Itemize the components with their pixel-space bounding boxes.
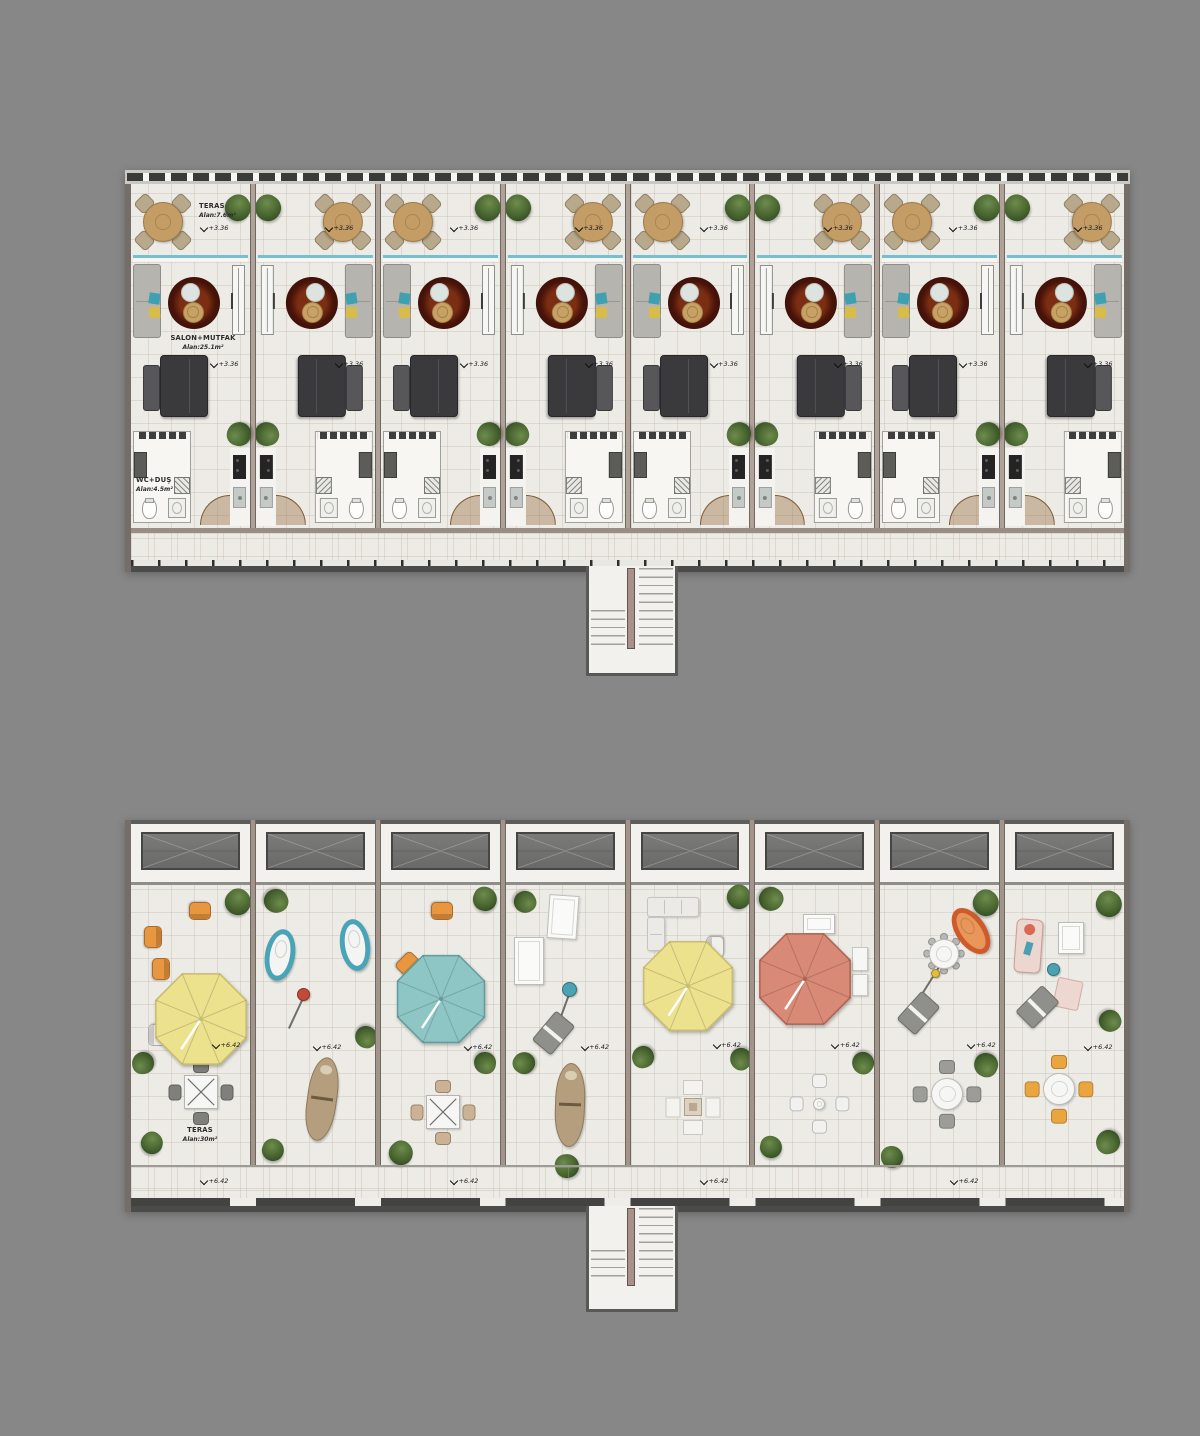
level-tick-icon <box>450 224 458 232</box>
shower-screen <box>1067 432 1119 439</box>
roof-partition-wall <box>500 820 506 1165</box>
shower-tray <box>566 477 582 494</box>
washbasin <box>917 498 935 518</box>
wardrobe-line <box>238 268 239 332</box>
level-marker: +3.36 <box>1085 360 1112 368</box>
pouf-wicker <box>682 302 703 323</box>
pouf-light <box>181 283 200 302</box>
area-label: WC+DUŞ <box>136 476 171 484</box>
level-tick-icon <box>834 360 842 368</box>
roof-terrace-unit: +6.42 <box>256 885 375 1165</box>
sink-faucet <box>514 496 518 500</box>
pouf-light <box>680 283 699 302</box>
roof-terrace-plan: +6.42TERASAlan:30m²+6.42+6.42+6.42+6.42+… <box>125 820 1130 1212</box>
patio-umbrella <box>149 967 253 1071</box>
kitchen-sink <box>260 487 273 508</box>
kitchen-counter <box>480 448 500 526</box>
sofa-pillow-yellow <box>398 306 410 318</box>
plant-shrub <box>1094 1128 1122 1156</box>
roof-terrace-unit: +6.42 <box>506 885 625 1165</box>
bathroom <box>315 431 373 523</box>
mattress-line <box>518 941 540 981</box>
wardrobe-line <box>738 268 739 332</box>
sofa-pillow-teal <box>345 292 357 304</box>
lounge-pad <box>683 1080 703 1095</box>
wardrobe-handle <box>523 293 525 309</box>
area-label: TERAS <box>165 1126 235 1134</box>
area-label: Alan:30m² <box>165 1136 235 1143</box>
apartment-unit: +3.36+3.36 <box>755 184 874 528</box>
wardrobe-line <box>766 268 767 332</box>
pouf-light <box>556 283 575 302</box>
shower-screen <box>636 432 688 439</box>
kitchen-sink <box>1009 487 1022 508</box>
pouf-wicker <box>432 302 453 323</box>
sofa-pillow-yellow <box>898 306 910 318</box>
pergola-skylight <box>890 832 989 870</box>
shower-screen <box>318 432 370 439</box>
lounge-pad <box>683 1120 703 1135</box>
level-marker: +3.36 <box>711 360 738 368</box>
cooktop <box>732 455 745 479</box>
plant-shrub <box>971 1049 1002 1080</box>
unit-partition-wall <box>375 184 381 528</box>
kitchen-sink <box>233 487 246 508</box>
bathroom <box>633 431 691 523</box>
wardrobe <box>232 265 245 335</box>
wardrobe-line <box>1016 268 1017 332</box>
apartment-unit: +3.36+3.36 <box>1005 184 1124 528</box>
wardrobe <box>511 265 524 335</box>
area-label: Alan:25.1m² <box>161 344 245 351</box>
terrace-threshold <box>633 258 748 262</box>
plant-shrub <box>136 1127 167 1158</box>
wardrobe-handle <box>273 293 275 309</box>
level-marker: +6.42 <box>968 1041 995 1049</box>
kitchen-sink <box>759 487 772 508</box>
lounger-strap <box>543 1024 563 1042</box>
level-marker: +6.42 <box>714 1041 741 1049</box>
washbasin <box>418 498 436 518</box>
pergola-skylight <box>765 832 864 870</box>
roof-terrace-unit: +6.42 <box>1005 885 1124 1165</box>
sofa-pillow-yellow <box>1094 306 1106 318</box>
round-table <box>813 1098 825 1110</box>
toilet-tank <box>894 498 903 503</box>
lounger-strap <box>908 1004 928 1022</box>
bed-fold <box>189 359 190 413</box>
bed-side-cushion <box>892 365 909 411</box>
unit-furniture-layer <box>506 184 625 528</box>
dining-table <box>184 1075 218 1109</box>
lounge-table-inner <box>689 1103 697 1111</box>
shower-screen <box>386 432 438 439</box>
floor-mat <box>1052 977 1084 1012</box>
washbasin-bowl <box>324 502 334 514</box>
level-tick-icon <box>200 224 208 232</box>
lounge-chair <box>1013 918 1044 974</box>
lounge-table <box>684 1098 702 1116</box>
pouf-light <box>930 283 949 302</box>
toilet <box>349 498 364 519</box>
stair-landing <box>589 566 628 605</box>
plant-shrub <box>1095 1006 1125 1036</box>
dining-chair <box>435 1080 451 1093</box>
round-table <box>931 1078 963 1110</box>
mattress-line <box>1062 926 1080 950</box>
roof-partition-wall <box>999 820 1005 1165</box>
shower-cabinet <box>634 452 647 478</box>
pouf-ring <box>807 306 818 317</box>
level-tick-icon <box>335 360 343 368</box>
dining-chair <box>221 1084 234 1100</box>
kitchen-counter <box>1005 448 1025 526</box>
level-marker: +3.36 <box>451 224 478 232</box>
stair-divider-wall <box>627 1208 635 1286</box>
toilet-tank <box>851 498 860 503</box>
lounger-strap <box>1027 998 1046 1017</box>
washbasin <box>819 498 837 518</box>
dining-chair <box>169 1084 182 1100</box>
shower-tray <box>1065 477 1081 494</box>
architectural-plan-canvas: +3.36+3.36TERASAlan:7.6m²SALON+MUTFAKAla… <box>0 0 1200 1436</box>
sink-faucet <box>264 496 268 500</box>
lounge-pillow <box>1023 924 1035 936</box>
bed-side-cushion <box>845 365 862 411</box>
washbasin-bowl <box>1073 502 1083 514</box>
shower-cabinet <box>883 452 896 478</box>
washbasin <box>1069 498 1087 518</box>
terrace-threshold <box>258 258 373 262</box>
shower-screen <box>885 432 937 439</box>
cushion-line <box>664 900 665 914</box>
area-label: SALON+MUTFAK <box>161 334 245 342</box>
sun-lounger <box>896 991 940 1036</box>
kitchen-sink <box>510 487 523 508</box>
pergola-skylight <box>1015 832 1114 870</box>
stairwell-upper-floor <box>586 566 678 676</box>
wardrobe-line <box>516 268 517 332</box>
unit-partition-wall <box>625 184 631 528</box>
sink-faucet <box>488 496 492 500</box>
pergola-skylight <box>641 832 740 870</box>
lounge-mattress <box>546 894 579 940</box>
lounge-pad <box>705 1097 720 1117</box>
area-label: Alan:7.6m² <box>199 212 236 219</box>
table-chair <box>1051 1055 1067 1070</box>
bed <box>160 355 208 417</box>
table-chair <box>913 1086 928 1102</box>
glass-sliding-door <box>1007 255 1122 258</box>
wardrobe <box>1010 265 1023 335</box>
door-swing-arc <box>700 495 730 525</box>
plan-outer-wall-left <box>125 170 131 572</box>
sofa-pillow-teal <box>595 292 607 304</box>
pouf-ring <box>187 306 198 317</box>
pouf-light <box>430 283 449 302</box>
pouf-ring <box>937 306 948 317</box>
area-label: Alan:4.5m² <box>136 486 173 493</box>
table-center <box>405 214 420 229</box>
pergola-skylight <box>516 832 615 870</box>
pouf-ring <box>437 306 448 317</box>
apartment-unit: +3.36+3.36 <box>506 184 625 528</box>
door-swing-arc <box>526 495 556 525</box>
cooktop <box>483 455 496 479</box>
bed-fold <box>566 359 567 413</box>
pergola-skylight <box>141 832 240 870</box>
sofa-pillow-yellow <box>845 306 857 318</box>
terrace-table <box>1072 202 1112 242</box>
unit-furniture-layer <box>1005 184 1124 528</box>
pouf-wicker <box>552 302 573 323</box>
roof-partition-wall <box>625 820 631 1165</box>
table-chair <box>1025 1081 1040 1097</box>
cooktop-burner <box>236 469 239 472</box>
glass-sliding-door <box>633 255 748 258</box>
level-marker: +3.36 <box>576 224 603 232</box>
pouf-light <box>306 283 325 302</box>
egg-chair-seat <box>273 939 288 959</box>
level-marker: +6.42 <box>1085 1043 1112 1051</box>
stair-landing <box>589 1206 628 1243</box>
table-chair <box>812 1120 827 1134</box>
wardrobe <box>261 265 274 335</box>
washbasin-bowl <box>921 502 931 514</box>
bed-fold <box>425 359 426 413</box>
wardrobe-line <box>988 268 989 332</box>
sofa-line <box>1105 301 1119 302</box>
toilet-tank <box>602 498 611 503</box>
round-table <box>1043 1073 1075 1105</box>
sink-faucet <box>1013 496 1017 500</box>
roof-corridor-railing <box>131 1198 1124 1206</box>
cushion-line <box>681 900 682 914</box>
corridor-wall <box>125 528 1130 533</box>
level-tick-icon <box>949 224 957 232</box>
washbasin-bowl <box>172 502 182 514</box>
level-tick-icon <box>460 360 468 368</box>
sofa <box>383 264 411 338</box>
apartment-unit: +3.36+3.36TERASAlan:7.6m²SALON+MUTFAKAla… <box>131 184 250 528</box>
unit-partition-wall <box>250 184 256 528</box>
kitchen-sink <box>982 487 995 508</box>
patio-umbrella <box>637 935 739 1037</box>
terrace-railing <box>125 170 1130 184</box>
plant-shrub <box>252 419 282 449</box>
level-tick-icon <box>574 224 582 232</box>
level-marker: +3.36 <box>461 360 488 368</box>
unit-partition-wall <box>749 184 755 528</box>
toilet-tank <box>395 498 404 503</box>
door-swing-arc <box>775 495 805 525</box>
glass-sliding-door <box>383 255 498 258</box>
level-marker: +3.36 <box>201 224 228 232</box>
toilet <box>392 498 407 519</box>
unit-furniture-layer <box>381 184 500 528</box>
wardrobe-handle <box>1022 293 1024 309</box>
lounge-pad <box>665 1097 680 1117</box>
roof-partition-wall <box>375 820 381 1165</box>
bed <box>660 355 708 417</box>
level-tick-icon <box>824 224 832 232</box>
table-chair <box>939 1060 955 1075</box>
washbasin <box>320 498 338 518</box>
level-marker: +3.36 <box>701 224 728 232</box>
apartment-unit: +3.36+3.36 <box>381 184 500 528</box>
level-tick-icon <box>450 1177 458 1185</box>
plant-shrub <box>469 883 500 914</box>
sofa <box>882 264 910 338</box>
level-tick-icon <box>950 1177 958 1185</box>
side-stool <box>297 988 310 1001</box>
level-marker: +6.42 <box>201 1177 228 1185</box>
sofa <box>345 264 373 338</box>
door-swing-arc <box>949 495 979 525</box>
plant-shrub <box>1001 419 1031 449</box>
level-marker: +6.42 <box>465 1043 492 1051</box>
roof-terrace-unit: +6.42TERASAlan:30m² <box>131 885 250 1165</box>
corridor-floor <box>131 533 1124 560</box>
bathroom <box>1064 431 1122 523</box>
plant-shrub <box>258 1135 287 1164</box>
bed-fold <box>674 359 675 413</box>
level-tick-icon <box>709 360 717 368</box>
bed <box>909 355 957 417</box>
plant-shrub <box>755 882 789 916</box>
shower-cabinet <box>134 452 147 478</box>
roof-terrace-unit: +6.42 <box>631 885 750 1165</box>
lounge-mattress <box>514 937 544 985</box>
armchair-back <box>190 914 210 919</box>
shower-cabinet <box>1108 452 1121 478</box>
dining-chair <box>435 1132 451 1145</box>
armchair <box>431 902 453 920</box>
wardrobe-line <box>488 268 489 332</box>
dining-chair <box>410 1104 423 1120</box>
sink-faucet <box>763 496 767 500</box>
kitchen-counter <box>256 448 276 526</box>
bathroom <box>814 431 872 523</box>
apartment-unit: +3.36+3.36 <box>631 184 750 528</box>
cooktop-burner <box>486 459 489 462</box>
table-chair <box>939 1114 955 1129</box>
level-tick-icon <box>464 1043 472 1051</box>
glass-sliding-door <box>133 255 248 258</box>
toilet <box>142 498 157 519</box>
dining-chair <box>193 1112 209 1125</box>
roof-parapet-line <box>125 1165 1130 1167</box>
shower-cabinet <box>359 452 372 478</box>
pouf-wicker <box>932 302 953 323</box>
bathroom <box>882 431 940 523</box>
sofa-pillow-yellow <box>648 306 660 318</box>
bed-fold <box>580 359 581 413</box>
toilet <box>642 498 657 519</box>
level-marker: +6.42 <box>582 1043 609 1051</box>
mattress-line <box>550 898 574 935</box>
bed <box>410 355 458 417</box>
bathroom <box>565 431 623 523</box>
shower-screen <box>136 432 188 439</box>
plant-shrub <box>502 419 532 449</box>
plant-shrub <box>758 1134 785 1161</box>
stairwell-roof <box>586 1206 678 1312</box>
armchair-back <box>156 927 161 947</box>
egg-chair <box>336 917 373 973</box>
level-marker: +3.36 <box>960 360 987 368</box>
shower-screen <box>568 432 620 439</box>
sink-faucet <box>238 496 242 500</box>
sofa-seat-h <box>647 897 699 917</box>
table-chair <box>1051 1109 1067 1124</box>
sofa-pillow-teal <box>398 292 410 304</box>
pouf-wicker <box>302 302 323 323</box>
patio-umbrella <box>391 949 491 1049</box>
terrace-table <box>643 202 683 242</box>
cooktop-burner <box>517 459 520 462</box>
level-marker: +3.36 <box>835 360 862 368</box>
armchair <box>189 902 211 920</box>
unit-furniture-layer <box>631 184 750 528</box>
pouf-ring <box>1056 306 1067 317</box>
level-marker: +3.36 <box>586 360 613 368</box>
side-stool <box>562 982 577 997</box>
roof-partition-wall <box>250 820 256 1165</box>
kitchen-counter <box>506 448 526 526</box>
bed-side-cushion <box>1095 365 1112 411</box>
plant-shrub <box>473 1051 497 1075</box>
table-center <box>655 214 670 229</box>
washbasin-bowl <box>422 502 432 514</box>
glass-sliding-door <box>258 255 373 258</box>
egg-chair-seat <box>347 929 361 948</box>
bed-side-cushion <box>393 365 410 411</box>
bed-fold <box>438 359 439 413</box>
kitchen-counter <box>729 448 749 526</box>
shower-cabinet <box>609 452 622 478</box>
shower-tray <box>174 477 190 494</box>
glass-sliding-door <box>882 255 997 258</box>
kitchen-counter <box>755 448 775 526</box>
door-swing-arc <box>276 495 306 525</box>
bed-fold <box>816 359 817 413</box>
level-marker: +6.42 <box>314 1043 341 1051</box>
sun-lounger <box>553 1063 586 1148</box>
toilet-tank <box>145 498 154 503</box>
table-center <box>905 214 920 229</box>
terrace-table <box>393 202 433 242</box>
sun-lounger <box>1015 985 1060 1030</box>
door-swing-arc <box>200 495 230 525</box>
sofa-pillow-teal <box>1094 292 1106 304</box>
bed-side-cushion <box>346 365 363 411</box>
bed-fold <box>829 359 830 413</box>
level-tick-icon <box>831 1041 839 1049</box>
bed-fold <box>316 359 317 413</box>
wardrobe <box>981 265 994 335</box>
stair-treads-right <box>639 568 673 645</box>
washbasin-bowl <box>823 502 833 514</box>
plant-shrub <box>629 1044 656 1071</box>
level-marker: +6.42 <box>451 1177 478 1185</box>
cooktop <box>510 455 523 479</box>
terrace-threshold <box>757 258 872 262</box>
terrace-table <box>573 202 613 242</box>
level-tick-icon <box>967 1041 975 1049</box>
unit-partition-wall <box>500 184 506 528</box>
pouf-ring <box>557 306 568 317</box>
